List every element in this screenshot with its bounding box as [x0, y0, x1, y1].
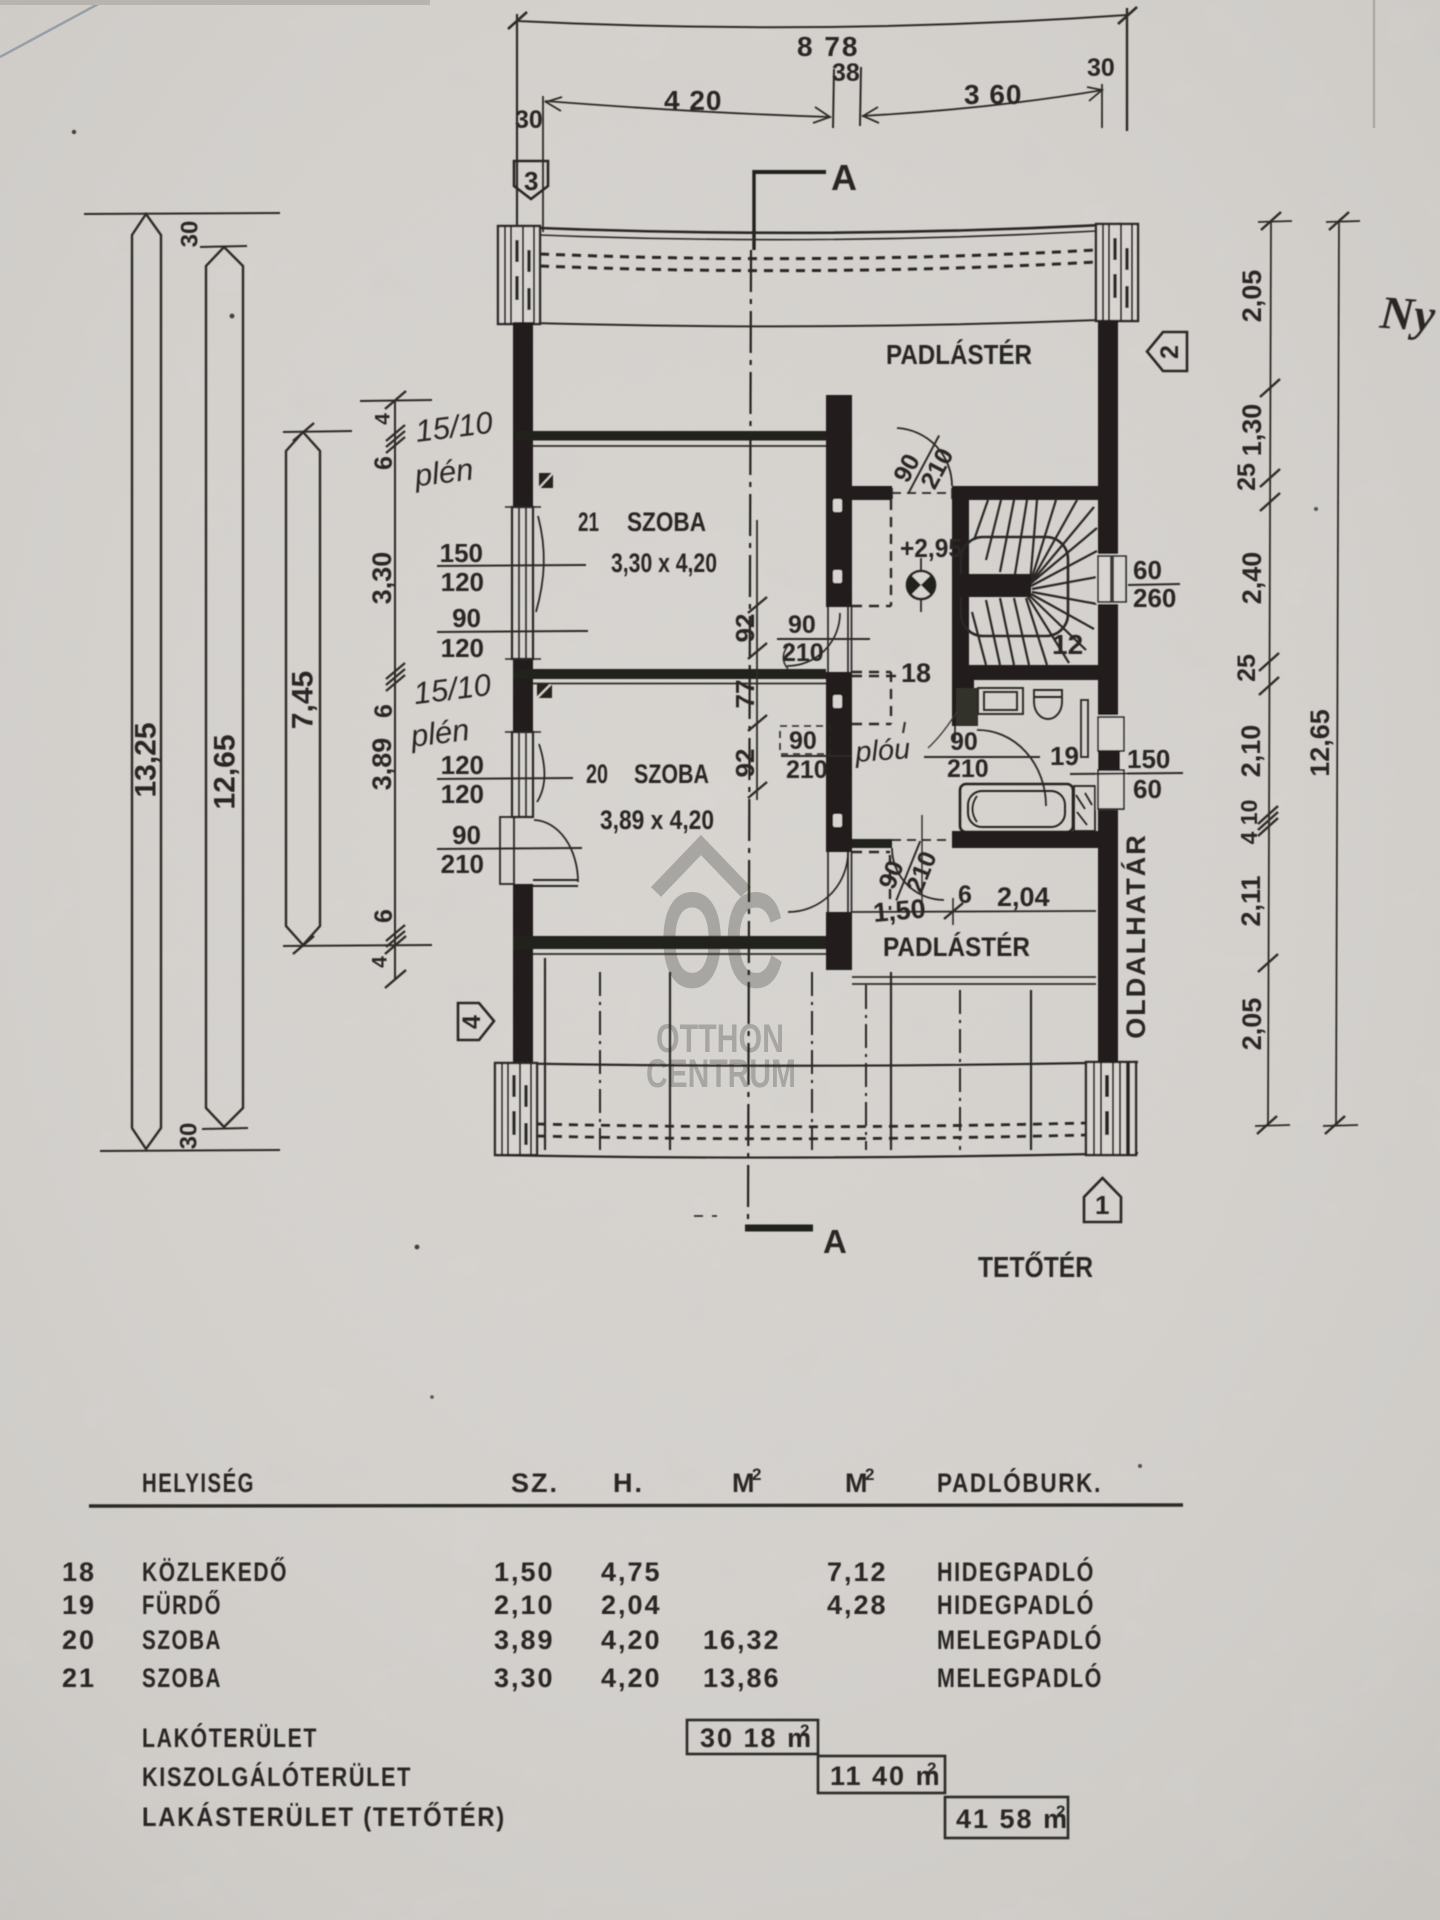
svg-text:2,40: 2,40 — [1237, 552, 1267, 605]
svg-text:2,10: 2,10 — [494, 1590, 555, 1620]
svg-text:90: 90 — [788, 611, 816, 639]
svg-text:3,30: 3,30 — [367, 552, 397, 605]
svg-text:2: 2 — [927, 1759, 936, 1778]
svg-text:1,50: 1,50 — [494, 1557, 555, 1587]
svg-text:90: 90 — [452, 603, 481, 633]
svg-text:4,20: 4,20 — [601, 1625, 662, 1655]
svg-text:plóu: plóu — [853, 733, 911, 769]
svg-text:90: 90 — [452, 820, 481, 850]
svg-text:12,65: 12,65 — [1305, 709, 1335, 777]
svg-text:HIDEGPADLÓ: HIDEGPADLÓ — [937, 1556, 1095, 1587]
svg-text:6: 6 — [370, 456, 398, 470]
svg-text:20: 20 — [586, 759, 608, 789]
svg-text:120: 120 — [441, 633, 484, 663]
svg-text:18: 18 — [62, 1557, 96, 1587]
svg-text:60: 60 — [1133, 774, 1162, 804]
svg-text:KISZOLGÁLÓTERÜLET: KISZOLGÁLÓTERÜLET — [142, 1761, 412, 1792]
svg-text:SZOBA: SZOBA — [142, 1663, 222, 1693]
svg-text:4 10: 4 10 — [1236, 800, 1262, 845]
svg-text:21: 21 — [62, 1663, 96, 1693]
svg-text:13,25: 13,25 — [130, 722, 163, 797]
svg-text:SZOBA: SZOBA — [634, 759, 709, 789]
svg-text:TETŐTÉR: TETŐTÉR — [978, 1250, 1093, 1284]
svg-text:11 40 m: 11 40 m — [830, 1761, 942, 1791]
svg-text:2,04: 2,04 — [601, 1590, 662, 1620]
svg-text:2,05: 2,05 — [1237, 998, 1267, 1051]
svg-text:60: 60 — [1133, 555, 1162, 585]
svg-text:4: 4 — [369, 956, 392, 968]
svg-text:12,65: 12,65 — [209, 734, 242, 809]
svg-text:92: 92 — [730, 614, 760, 643]
svg-text:210: 210 — [786, 756, 828, 784]
svg-text:30: 30 — [515, 106, 543, 134]
svg-text:H.: H. — [613, 1468, 644, 1498]
svg-text:Ny: Ny — [1377, 287, 1436, 343]
svg-text:plén: plén — [408, 712, 471, 754]
svg-text:150: 150 — [440, 538, 483, 568]
svg-text:2: 2 — [1156, 345, 1184, 359]
svg-text:2,11: 2,11 — [1236, 875, 1266, 926]
svg-text:SZOBA: SZOBA — [627, 507, 706, 537]
svg-text:3,30 x 4,20: 3,30 x 4,20 — [611, 548, 717, 578]
svg-text:plén: plén — [412, 451, 475, 493]
svg-text:3,30: 3,30 — [494, 1663, 555, 1693]
svg-text:SZOBA: SZOBA — [142, 1625, 222, 1655]
svg-text:7,12: 7,12 — [827, 1557, 888, 1587]
svg-text:210: 210 — [441, 849, 484, 879]
svg-text:210: 210 — [947, 755, 989, 783]
svg-text:25: 25 — [1233, 654, 1261, 682]
svg-text:21: 21 — [578, 507, 599, 537]
svg-text:150: 150 — [1127, 744, 1170, 774]
svg-text:19: 19 — [1050, 741, 1079, 771]
svg-text:6: 6 — [370, 704, 398, 718]
svg-text:92: 92 — [730, 749, 760, 778]
svg-text:4: 4 — [372, 413, 395, 425]
svg-text:+2,95: +2,95 — [900, 533, 962, 563]
svg-text:25: 25 — [1233, 463, 1261, 491]
svg-text:6: 6 — [958, 881, 972, 909]
svg-text:30: 30 — [177, 221, 204, 248]
svg-text:6: 6 — [370, 909, 398, 923]
svg-text:120: 120 — [441, 750, 484, 780]
svg-text:2,05: 2,05 — [1237, 270, 1267, 323]
svg-text:120: 120 — [441, 779, 484, 809]
svg-text:20: 20 — [62, 1625, 96, 1655]
svg-text:MELEGPADLÓ: MELEGPADLÓ — [937, 1624, 1103, 1655]
svg-text:FÜRDŐ: FÜRDŐ — [142, 1589, 222, 1620]
svg-text:12: 12 — [1052, 629, 1083, 660]
svg-text:7,45: 7,45 — [287, 671, 320, 729]
svg-text:77: 77 — [730, 680, 760, 709]
svg-text:1,30: 1,30 — [1237, 404, 1267, 457]
svg-text:LAKÁSTERÜLET (TETŐTÉR): LAKÁSTERÜLET (TETŐTÉR) — [142, 1801, 506, 1832]
svg-text:2,04: 2,04 — [997, 882, 1050, 912]
svg-text:30: 30 — [176, 1123, 203, 1150]
svg-text:260: 260 — [1133, 583, 1176, 613]
svg-text:4 20: 4 20 — [664, 85, 723, 116]
svg-text:38: 38 — [832, 59, 860, 87]
svg-text:90: 90 — [950, 728, 978, 756]
svg-text:HELYISÉG: HELYISÉG — [142, 1467, 255, 1498]
svg-text:18: 18 — [901, 658, 931, 688]
svg-text:LAKÓTERÜLET: LAKÓTERÜLET — [142, 1722, 318, 1753]
svg-text:4,28: 4,28 — [827, 1590, 888, 1620]
svg-text:19: 19 — [62, 1590, 96, 1620]
svg-text:3: 3 — [524, 166, 538, 196]
svg-text:PADLÁSTÉR: PADLÁSTÉR — [886, 339, 1032, 370]
svg-text:210: 210 — [782, 639, 824, 667]
svg-text:SZ.: SZ. — [511, 1468, 559, 1498]
svg-text:4: 4 — [458, 1015, 486, 1029]
svg-text:3 60: 3 60 — [964, 79, 1023, 110]
svg-text:41 58 m: 41 58 m — [956, 1804, 1069, 1834]
svg-text:3,89 x 4,20: 3,89 x 4,20 — [600, 805, 714, 835]
svg-text:CENTRUM: CENTRUM — [646, 1052, 796, 1096]
svg-text:3,89: 3,89 — [367, 738, 397, 791]
svg-text:KÖZLEKEDŐ: KÖZLEKEDŐ — [142, 1556, 288, 1587]
svg-text:1: 1 — [1095, 1190, 1109, 1220]
svg-text:A: A — [823, 1223, 847, 1260]
svg-text:MELEGPADLÓ: MELEGPADLÓ — [937, 1662, 1103, 1693]
svg-text:HIDEGPADLÓ: HIDEGPADLÓ — [937, 1589, 1095, 1620]
svg-text:30: 30 — [1087, 54, 1115, 82]
svg-text:16,32: 16,32 — [703, 1625, 781, 1655]
svg-text:30 18 m: 30 18 m — [700, 1723, 813, 1753]
svg-text:4,20: 4,20 — [601, 1663, 662, 1693]
svg-text:13,86: 13,86 — [703, 1663, 781, 1693]
svg-text:90: 90 — [789, 727, 817, 755]
svg-text:OLDALHATÁR: OLDALHATÁR — [1120, 833, 1151, 1038]
svg-text:4,75: 4,75 — [601, 1557, 662, 1587]
svg-text:8 78: 8 78 — [797, 31, 860, 62]
svg-text:2: 2 — [865, 1465, 876, 1484]
svg-text:PADLÓBURK.: PADLÓBURK. — [937, 1467, 1102, 1498]
svg-text:120: 120 — [441, 567, 484, 597]
svg-text:2: 2 — [752, 1465, 763, 1484]
svg-text:3,89: 3,89 — [494, 1625, 555, 1655]
svg-text:2,10: 2,10 — [1236, 725, 1266, 778]
svg-text:A: A — [831, 157, 857, 198]
svg-text:1,50: 1,50 — [872, 894, 927, 928]
svg-text:2: 2 — [800, 1721, 809, 1740]
svg-text:PADLÁSTÉR: PADLÁSTÉR — [883, 931, 1030, 962]
svg-text:2: 2 — [1056, 1802, 1065, 1821]
